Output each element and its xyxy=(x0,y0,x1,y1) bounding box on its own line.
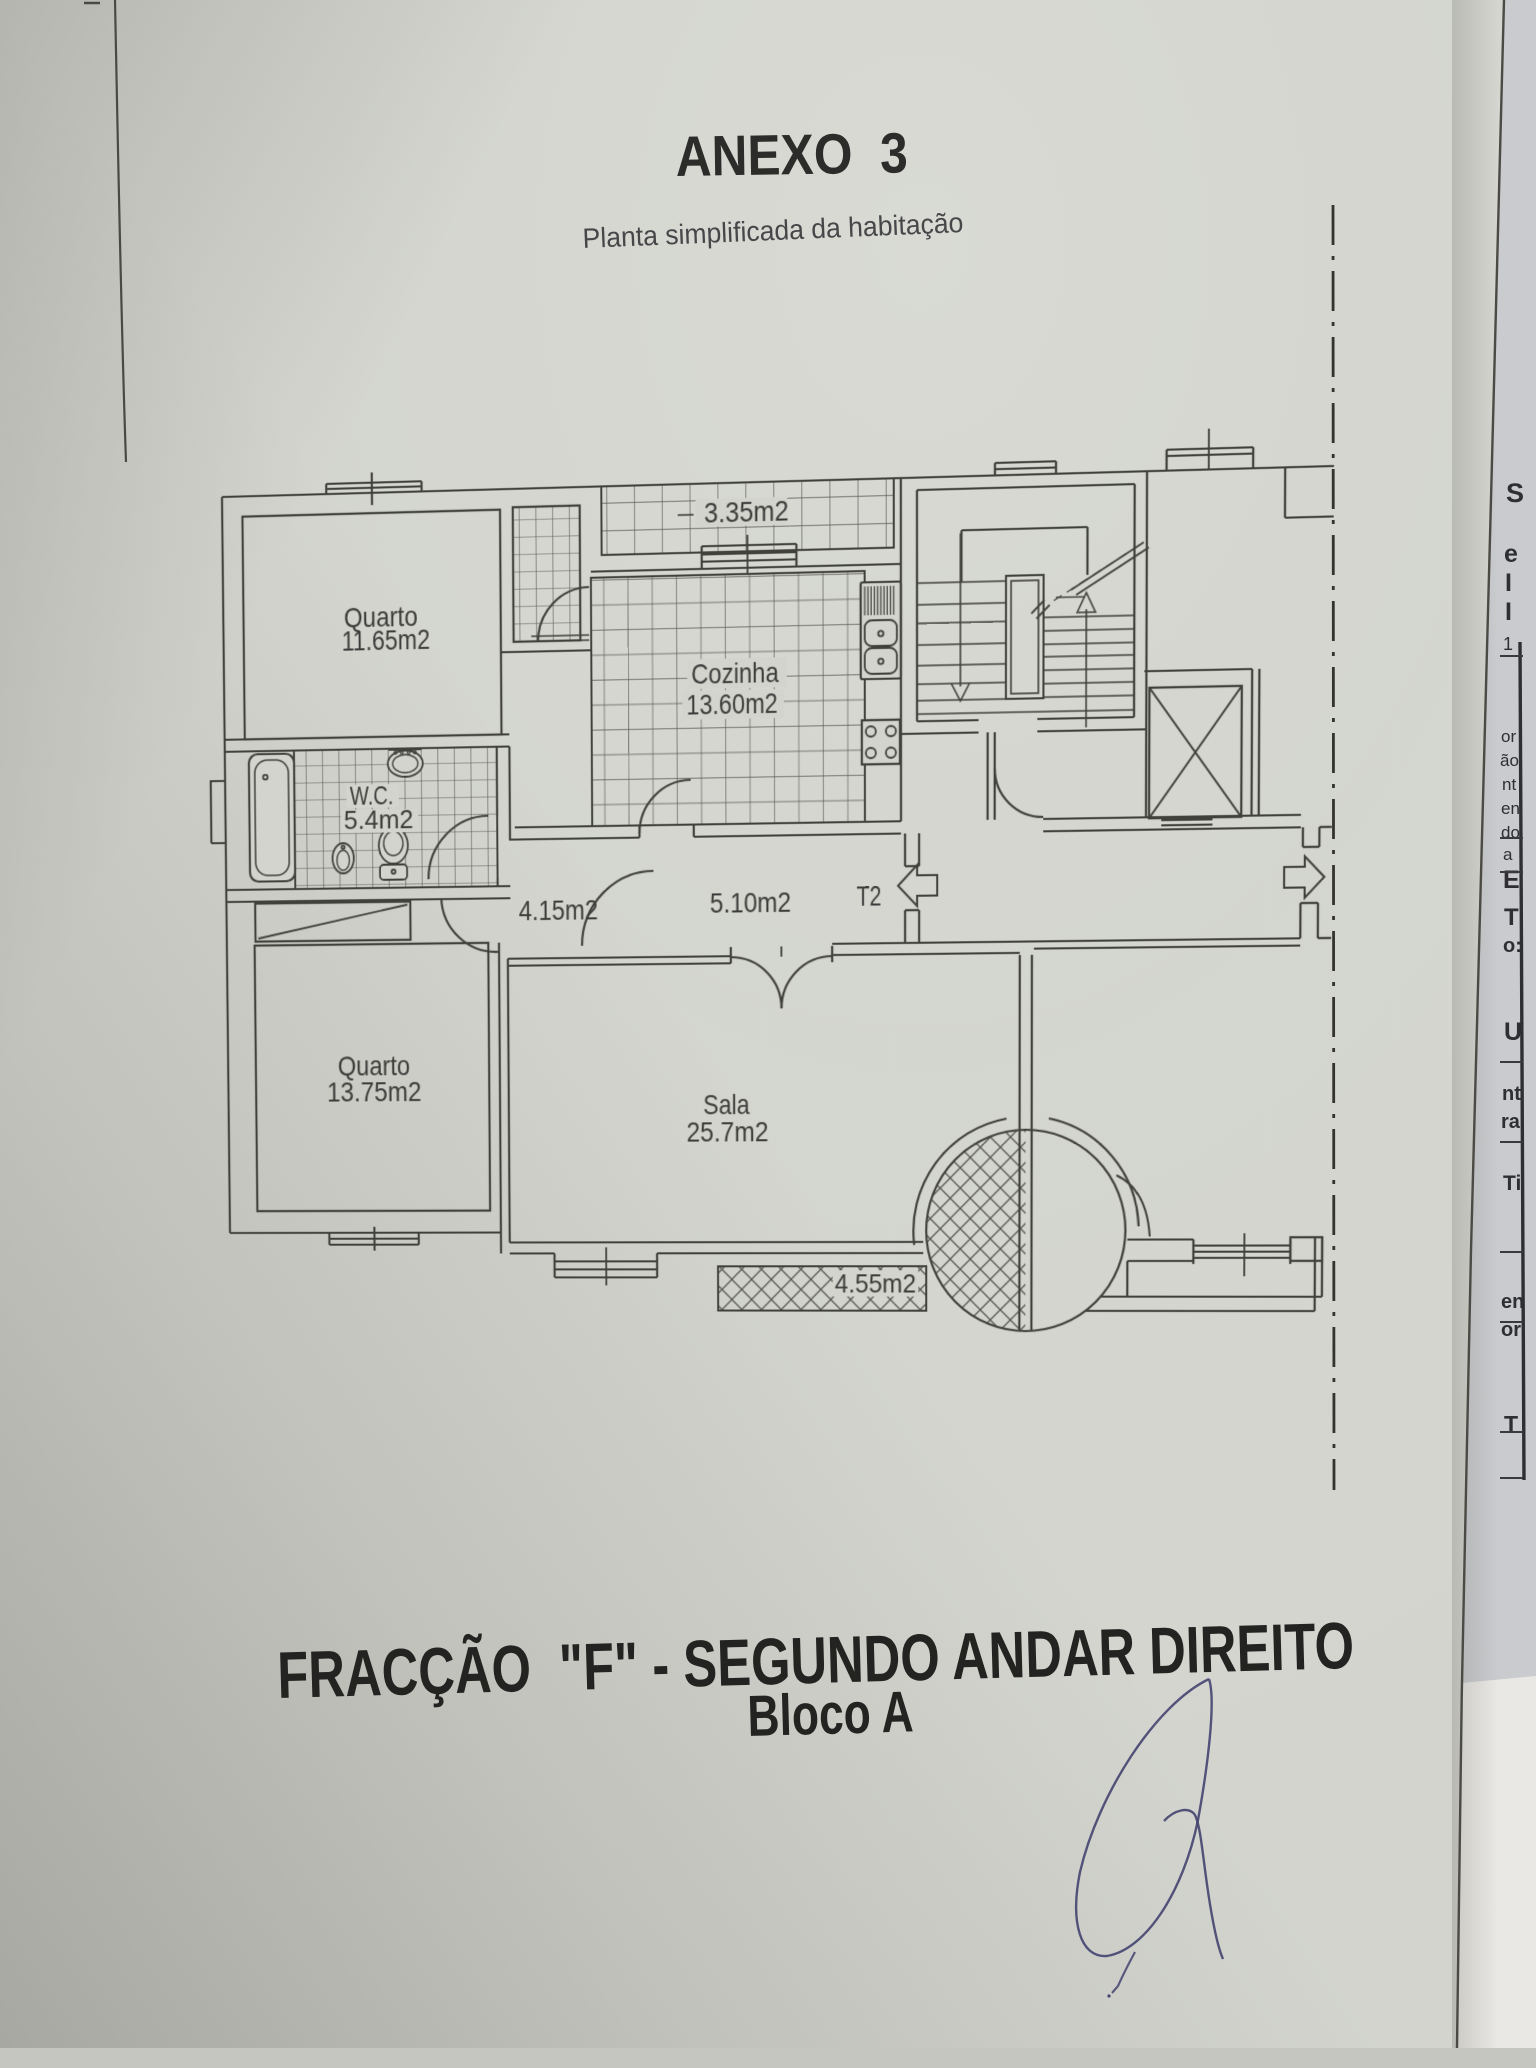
svg-text:25.7m2: 25.7m2 xyxy=(686,1117,768,1148)
svg-text:13.75m2: 13.75m2 xyxy=(327,1077,422,1108)
svg-text:11.65m2: 11.65m2 xyxy=(342,624,431,657)
svg-text:T2: T2 xyxy=(857,881,882,912)
svg-text:4.15m2: 4.15m2 xyxy=(519,895,598,927)
svg-text:5.10m2: 5.10m2 xyxy=(710,887,791,919)
svg-text:5.4m2: 5.4m2 xyxy=(344,807,414,836)
svg-text:3.35m2: 3.35m2 xyxy=(704,495,789,529)
svg-text:4.55m2: 4.55m2 xyxy=(835,1271,917,1299)
svg-text:13.60m2: 13.60m2 xyxy=(686,688,778,721)
svg-text:Cozinha: Cozinha xyxy=(691,657,779,690)
svg-text:Sala: Sala xyxy=(703,1089,750,1120)
